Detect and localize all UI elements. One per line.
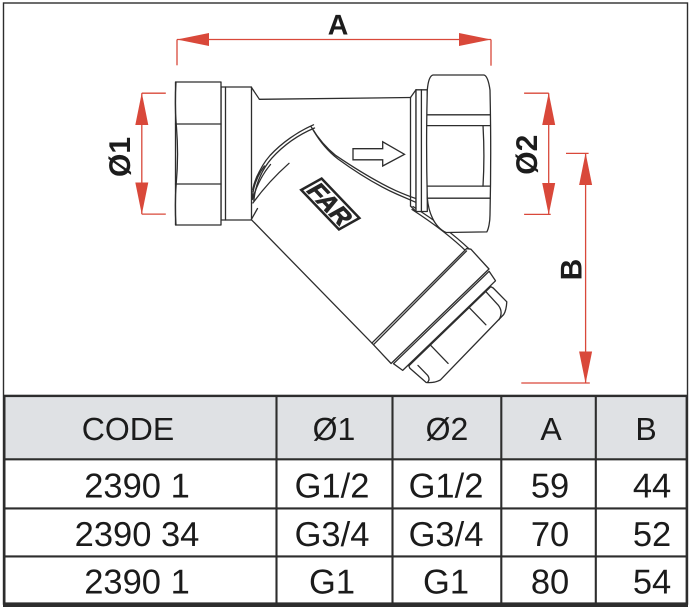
svg-text:G3/4: G3/4 <box>409 516 484 554</box>
svg-text:Ø2: Ø2 <box>426 411 469 447</box>
svg-text:G1: G1 <box>309 564 355 602</box>
svg-text:80: 80 <box>531 564 569 602</box>
svg-text:G1/2: G1/2 <box>295 468 370 506</box>
svg-text:B: B <box>635 411 656 447</box>
svg-text:70: 70 <box>531 516 569 554</box>
svg-text:59: 59 <box>531 468 569 506</box>
svg-text:Ø1: Ø1 <box>313 411 356 447</box>
svg-text:44: 44 <box>633 468 671 506</box>
svg-text:G3/4: G3/4 <box>295 516 370 554</box>
svg-text:A: A <box>328 10 349 42</box>
svg-text:A: A <box>540 411 562 447</box>
svg-text:CODE: CODE <box>82 411 174 447</box>
svg-text:2390 1: 2390 1 <box>84 468 190 506</box>
svg-text:G1/2: G1/2 <box>409 468 484 506</box>
svg-text:2390 1: 2390 1 <box>84 564 190 602</box>
svg-text:B: B <box>556 259 589 281</box>
svg-text:Ø2: Ø2 <box>511 135 544 175</box>
svg-text:G1: G1 <box>423 564 469 602</box>
svg-text:2390 34: 2390 34 <box>75 516 200 554</box>
svg-text:54: 54 <box>633 564 671 602</box>
svg-text:Ø1: Ø1 <box>104 137 137 177</box>
svg-text:52: 52 <box>633 516 671 554</box>
